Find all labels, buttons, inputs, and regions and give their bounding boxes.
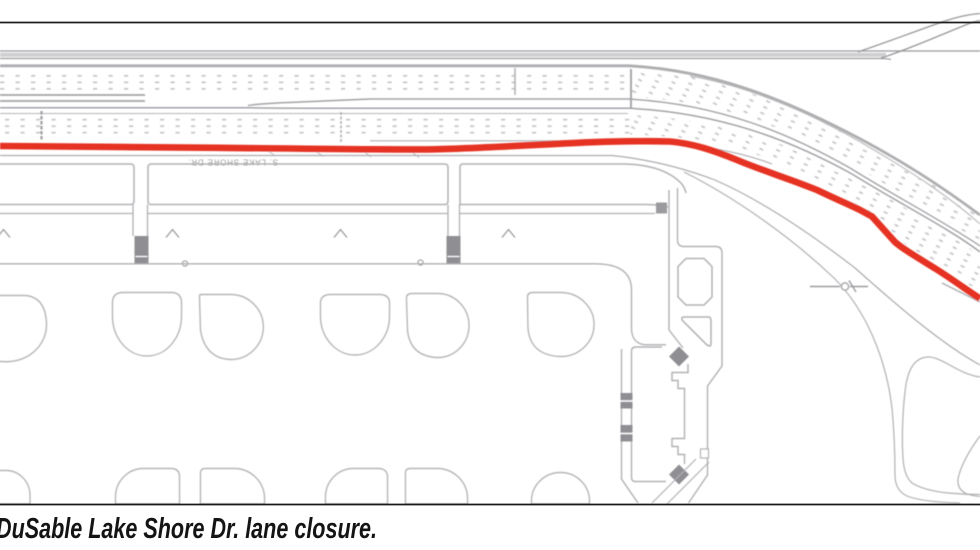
svg-text:DuSable Lake Shore Dr. lane cl: DuSable Lake Shore Dr. lane closure. <box>0 513 377 545</box>
svg-text:S. LAKE SHORE DR.: S. LAKE SHORE DR. <box>187 158 278 167</box>
